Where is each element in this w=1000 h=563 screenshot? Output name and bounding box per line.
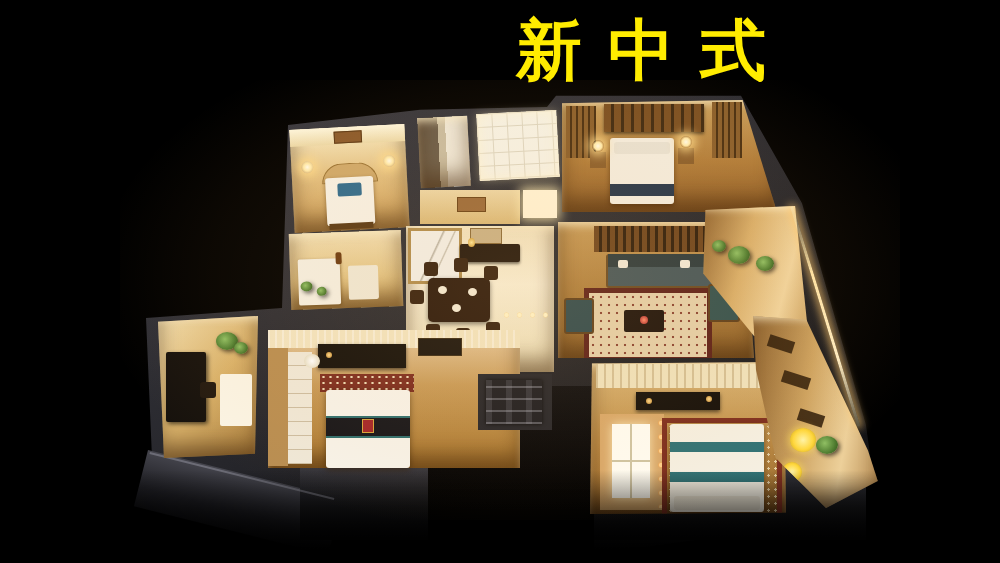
- title-text: 新中式: [516, 8, 986, 92]
- room-master-bedroom: [562, 100, 777, 212]
- white-flowers: [304, 354, 320, 368]
- white-table: [220, 374, 252, 426]
- gold-ornament: [646, 398, 652, 404]
- gold-ornament: [326, 352, 332, 358]
- room-bedroom-northwest: [289, 124, 409, 233]
- wall-lamp: [383, 155, 396, 168]
- wall-art: [418, 338, 462, 356]
- nightstand: [678, 148, 694, 164]
- wall-art: [334, 130, 363, 143]
- outdoor-chair: [767, 334, 795, 353]
- yellow-flowers: [790, 428, 816, 452]
- room-kitchen: [289, 230, 404, 310]
- lattice-wardrobe: [604, 104, 704, 132]
- outdoor-chair: [781, 370, 811, 390]
- place-setting: [438, 286, 447, 294]
- outdoor-chair: [797, 408, 825, 427]
- bed-emblem: [362, 419, 374, 433]
- plant-icon: [728, 246, 750, 264]
- bed-teal-stripe: [670, 442, 764, 452]
- lit-closet: [523, 190, 557, 218]
- ceiling-texture: [596, 364, 780, 388]
- room-white-tiles: [476, 110, 559, 181]
- wall-lamp: [301, 161, 314, 174]
- bedside-lamp: [592, 140, 604, 152]
- throw-pillow: [618, 260, 628, 268]
- bedside-lamp: [680, 136, 692, 148]
- plant-icon: [756, 256, 774, 271]
- wood-cabinet: [268, 348, 288, 466]
- gold-ornament: [706, 396, 712, 402]
- wall-art: [457, 197, 486, 212]
- dining-chair: [410, 290, 424, 304]
- bed-blue-panel: [337, 182, 362, 196]
- wardrobe: [288, 352, 312, 464]
- dining-table: [428, 278, 490, 322]
- lattice-screen: [712, 102, 742, 158]
- bed-pillows: [614, 142, 670, 154]
- photo-stage: 新中式: [0, 0, 1000, 563]
- plant-icon: [816, 436, 838, 454]
- bed-navy-runner: [610, 184, 674, 196]
- table-flowers: [640, 316, 648, 324]
- floor-led-dots: [500, 310, 552, 320]
- entry-control-panel: [486, 380, 542, 424]
- room-bathroom: [417, 116, 471, 189]
- plant-icon: [234, 342, 248, 354]
- throw-pillow: [680, 260, 690, 268]
- lattice-screen: [594, 226, 714, 252]
- armchair: [564, 298, 594, 334]
- foreground-shadow: [0, 470, 1000, 563]
- dining-chair: [454, 258, 468, 272]
- kitchen-island: [348, 265, 379, 300]
- desk-chair: [200, 382, 216, 398]
- plant-icon: [712, 240, 726, 252]
- sideboard: [460, 244, 520, 262]
- bottle: [335, 252, 341, 264]
- dining-chair: [424, 262, 438, 276]
- room-study: [158, 316, 258, 458]
- bed-foot-bench: [329, 222, 373, 230]
- nightstand: [590, 152, 606, 168]
- hallway: [420, 190, 520, 224]
- vase: [468, 238, 475, 247]
- place-setting: [452, 304, 461, 312]
- dining-chair: [484, 266, 498, 280]
- lattice-screen: [566, 106, 596, 158]
- place-setting: [468, 288, 477, 296]
